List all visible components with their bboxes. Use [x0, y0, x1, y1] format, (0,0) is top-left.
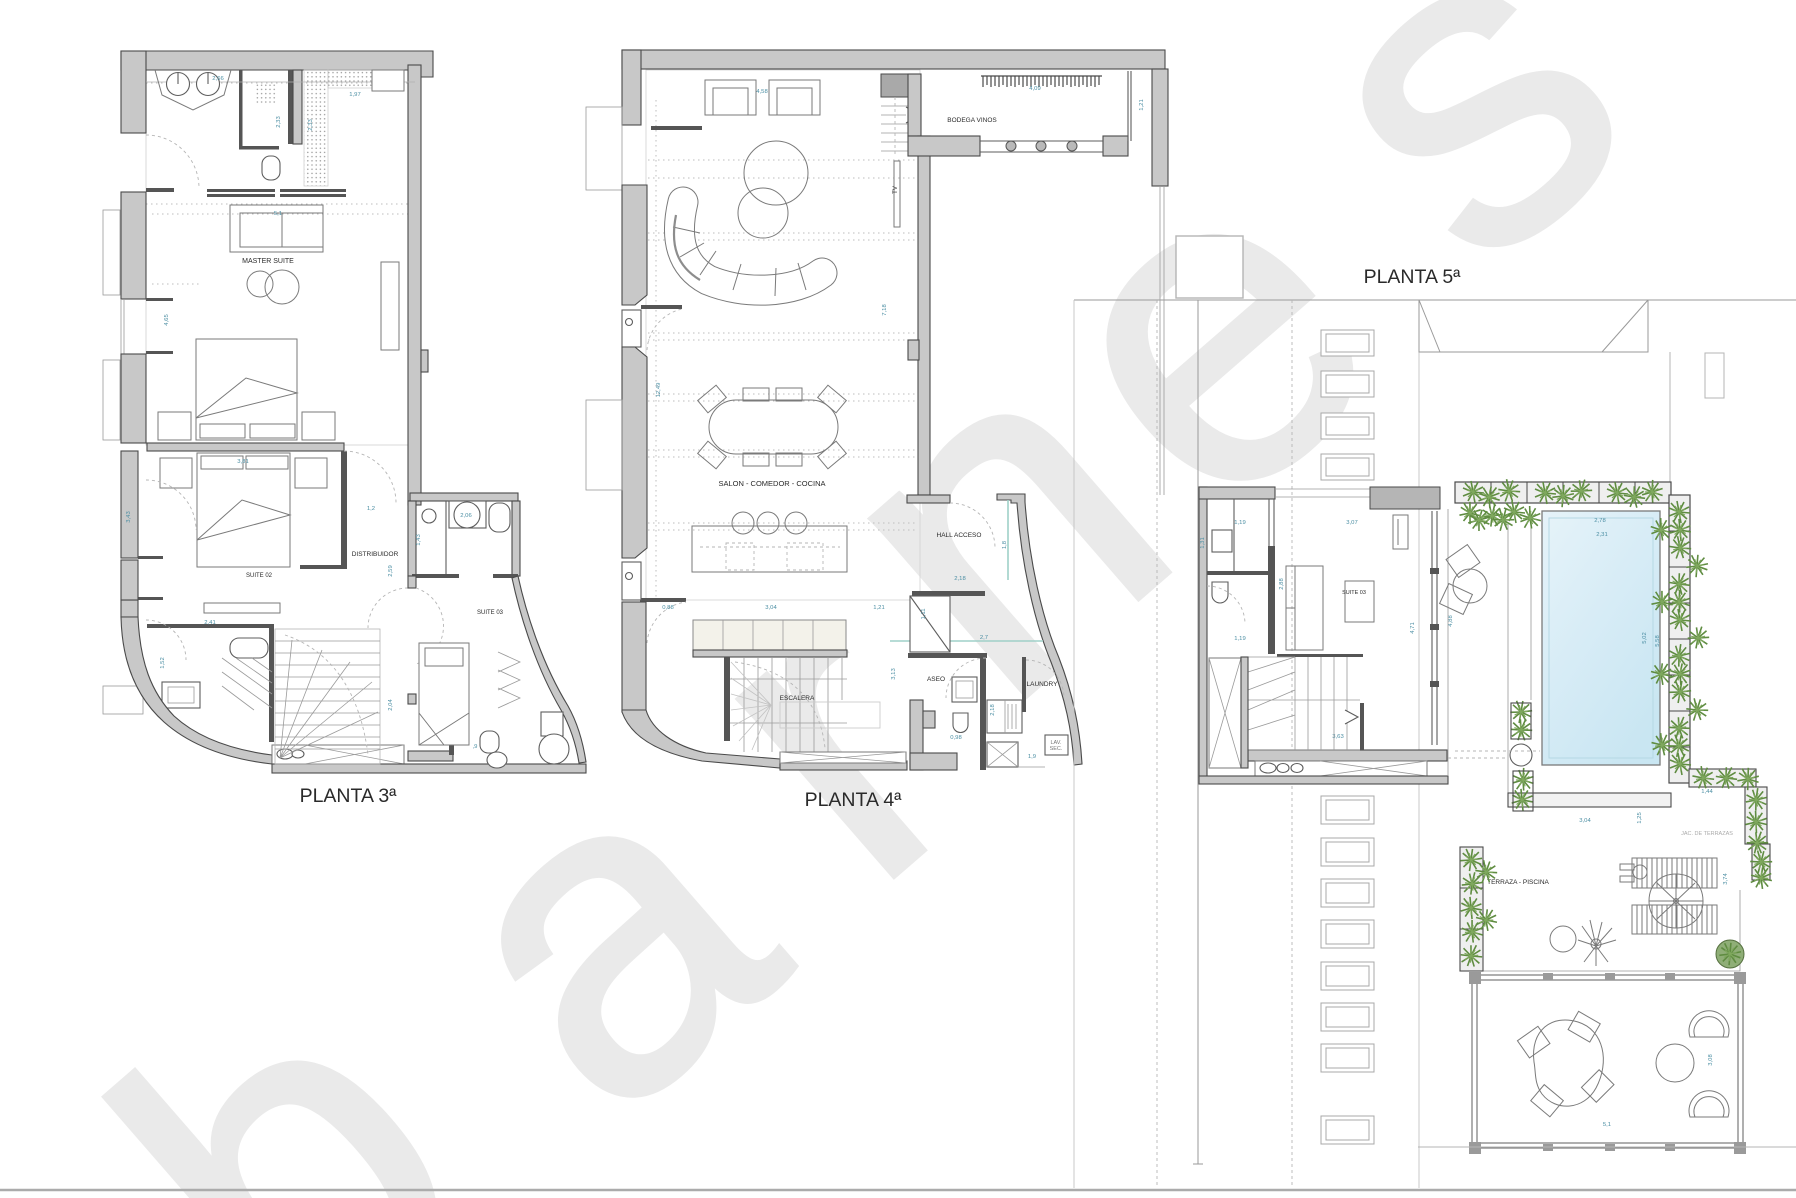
svg-text:1,44: 1,44 — [1701, 789, 1713, 795]
svg-text:PLANTA 5ª: PLANTA 5ª — [1364, 266, 1462, 288]
svg-text:ASEO: ASEO — [927, 676, 945, 683]
svg-text:SUITE 03: SUITE 03 — [477, 610, 504, 616]
svg-text:2,06: 2,06 — [460, 513, 472, 519]
svg-text:2,31: 2,31 — [1596, 532, 1607, 538]
svg-text:3,43: 3,43 — [126, 511, 132, 523]
svg-text:7,18: 7,18 — [882, 304, 888, 316]
svg-text:2,04: 2,04 — [388, 699, 394, 711]
svg-text:3,13: 3,13 — [891, 668, 897, 680]
svg-text:1,11: 1,11 — [921, 608, 927, 619]
svg-text:4,88: 4,88 — [1448, 615, 1454, 627]
svg-text:1,31: 1,31 — [1200, 537, 1206, 548]
svg-text:1,52: 1,52 — [160, 657, 166, 668]
svg-text:1,97: 1,97 — [349, 92, 360, 98]
svg-text:1,19: 1,19 — [1234, 636, 1245, 642]
svg-text:DISTRIBUIDOR: DISTRIBUIDOR — [352, 551, 399, 558]
svg-text:PLANTA 3ª: PLANTA 3ª — [300, 785, 398, 807]
svg-text:2,78: 2,78 — [1594, 518, 1606, 524]
svg-text:,9: ,9 — [473, 744, 478, 750]
svg-text:0,98: 0,98 — [950, 735, 962, 741]
svg-text:12,49: 12,49 — [656, 383, 662, 398]
svg-text:1,21: 1,21 — [873, 605, 884, 611]
svg-text:TV: TV — [893, 186, 899, 194]
svg-text:3,74: 3,74 — [1723, 873, 1729, 885]
svg-text:1,21: 1,21 — [1139, 99, 1145, 110]
svg-text:3,07: 3,07 — [1346, 520, 1357, 526]
svg-text:SEC.: SEC. — [1050, 746, 1063, 752]
svg-text:1,8: 1,8 — [1002, 540, 1008, 549]
svg-text:1,9: 1,9 — [1028, 754, 1036, 760]
svg-text:2,41: 2,41 — [204, 620, 215, 626]
svg-text:HALL ACCESO: HALL ACCESO — [937, 532, 982, 539]
svg-text:2,88: 2,88 — [1279, 578, 1285, 590]
svg-text:2,18: 2,18 — [954, 576, 966, 582]
svg-text:4,09: 4,09 — [1029, 86, 1040, 92]
svg-text:PLANTA 4ª: PLANTA 4ª — [805, 789, 903, 811]
svg-text:4,65: 4,65 — [164, 314, 170, 326]
svg-text:3,04: 3,04 — [1579, 818, 1591, 824]
svg-text:JAC. DE TERRAZAS: JAC. DE TERRAZAS — [1681, 831, 1733, 837]
svg-text:3,08: 3,08 — [1708, 1054, 1714, 1066]
svg-text:2,33: 2,33 — [276, 116, 282, 128]
svg-text:4,71: 4,71 — [1410, 622, 1416, 633]
svg-text:ESCALERA: ESCALERA — [780, 695, 815, 702]
svg-text:SUITE 03: SUITE 03 — [1342, 590, 1366, 596]
svg-text:SALON - COMEDOR - COCINA: SALON - COMEDOR - COCINA — [718, 479, 825, 488]
svg-text:1,2: 1,2 — [367, 506, 375, 512]
svg-text:2,59: 2,59 — [388, 565, 394, 576]
svg-text:MASTER SUITE: MASTER SUITE — [242, 258, 294, 265]
svg-text:5,58: 5,58 — [1655, 635, 1661, 647]
svg-text:3,81: 3,81 — [237, 459, 248, 465]
svg-text:2,66: 2,66 — [212, 76, 224, 82]
svg-text:2,33: 2,33 — [308, 119, 314, 131]
svg-text:2,7: 2,7 — [980, 635, 988, 641]
svg-text:2,18: 2,18 — [990, 704, 996, 716]
svg-text:BODEGA VINOS: BODEGA VINOS — [947, 117, 997, 124]
svg-text:0,88: 0,88 — [662, 605, 674, 611]
svg-text:5,1: 5,1 — [274, 211, 282, 217]
svg-text:5,1: 5,1 — [1603, 1122, 1611, 1128]
svg-text:1,19: 1,19 — [1234, 520, 1245, 526]
svg-text:1,25: 1,25 — [1637, 812, 1643, 824]
svg-text:4,58: 4,58 — [756, 89, 768, 95]
svg-text:LAUNDRY: LAUNDRY — [1027, 681, 1059, 688]
svg-text:5,02: 5,02 — [1642, 632, 1648, 643]
svg-text:TERRAZA - PISCINA: TERRAZA - PISCINA — [1487, 879, 1549, 886]
svg-text:3,04: 3,04 — [765, 605, 777, 611]
svg-text:SUITE 02: SUITE 02 — [246, 573, 273, 579]
svg-text:1,43: 1,43 — [416, 534, 422, 546]
